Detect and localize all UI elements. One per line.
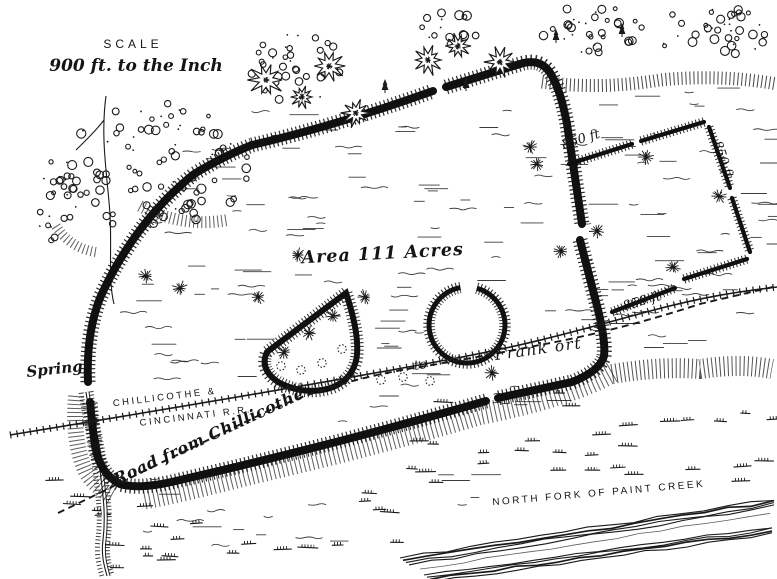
road-to-label: to bbox=[413, 357, 428, 374]
creek-label: NORTH FORK OF PAINT CREEK bbox=[492, 479, 706, 509]
crescent-earthwork bbox=[265, 293, 358, 391]
railroad-label-line1: CHILLICOTHE & bbox=[112, 386, 217, 410]
spring-label: Spring bbox=[26, 357, 84, 381]
scale-ratio: 900 ft. to the Inch bbox=[49, 56, 223, 76]
creek bbox=[400, 501, 774, 579]
measurement-square-south: 850 ft bbox=[621, 289, 663, 314]
railroad-line bbox=[10, 287, 777, 435]
area-label: Area 111 Acres bbox=[299, 240, 464, 269]
measurement-square-east: 850 ft. bbox=[709, 139, 737, 185]
scale-heading: SCALE bbox=[103, 37, 162, 51]
earthwork-survey-map: SCALE 900 ft. to the Inch Area 111 Acres… bbox=[0, 0, 777, 579]
